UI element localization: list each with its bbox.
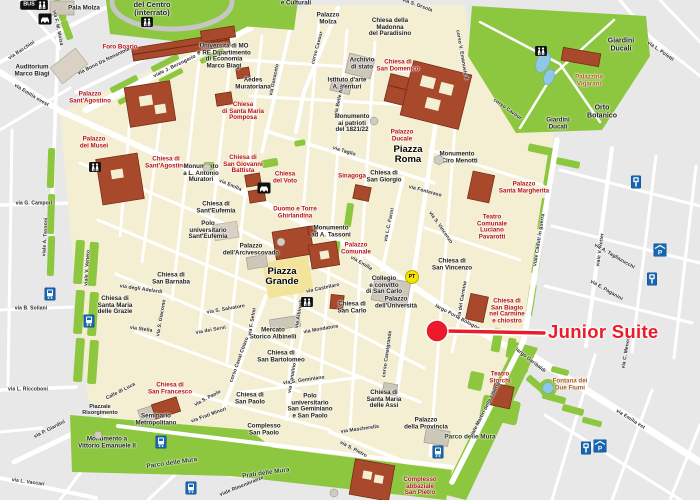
junior-suite-label: Junior Suite	[548, 321, 659, 343]
junior-suite-annotation: Junior Suite	[0, 0, 700, 500]
junior-suite-marker	[0, 0, 700, 500]
city-map: Foro BoarioPalazzo Sant'AgostinoChiesa d…	[0, 0, 700, 500]
